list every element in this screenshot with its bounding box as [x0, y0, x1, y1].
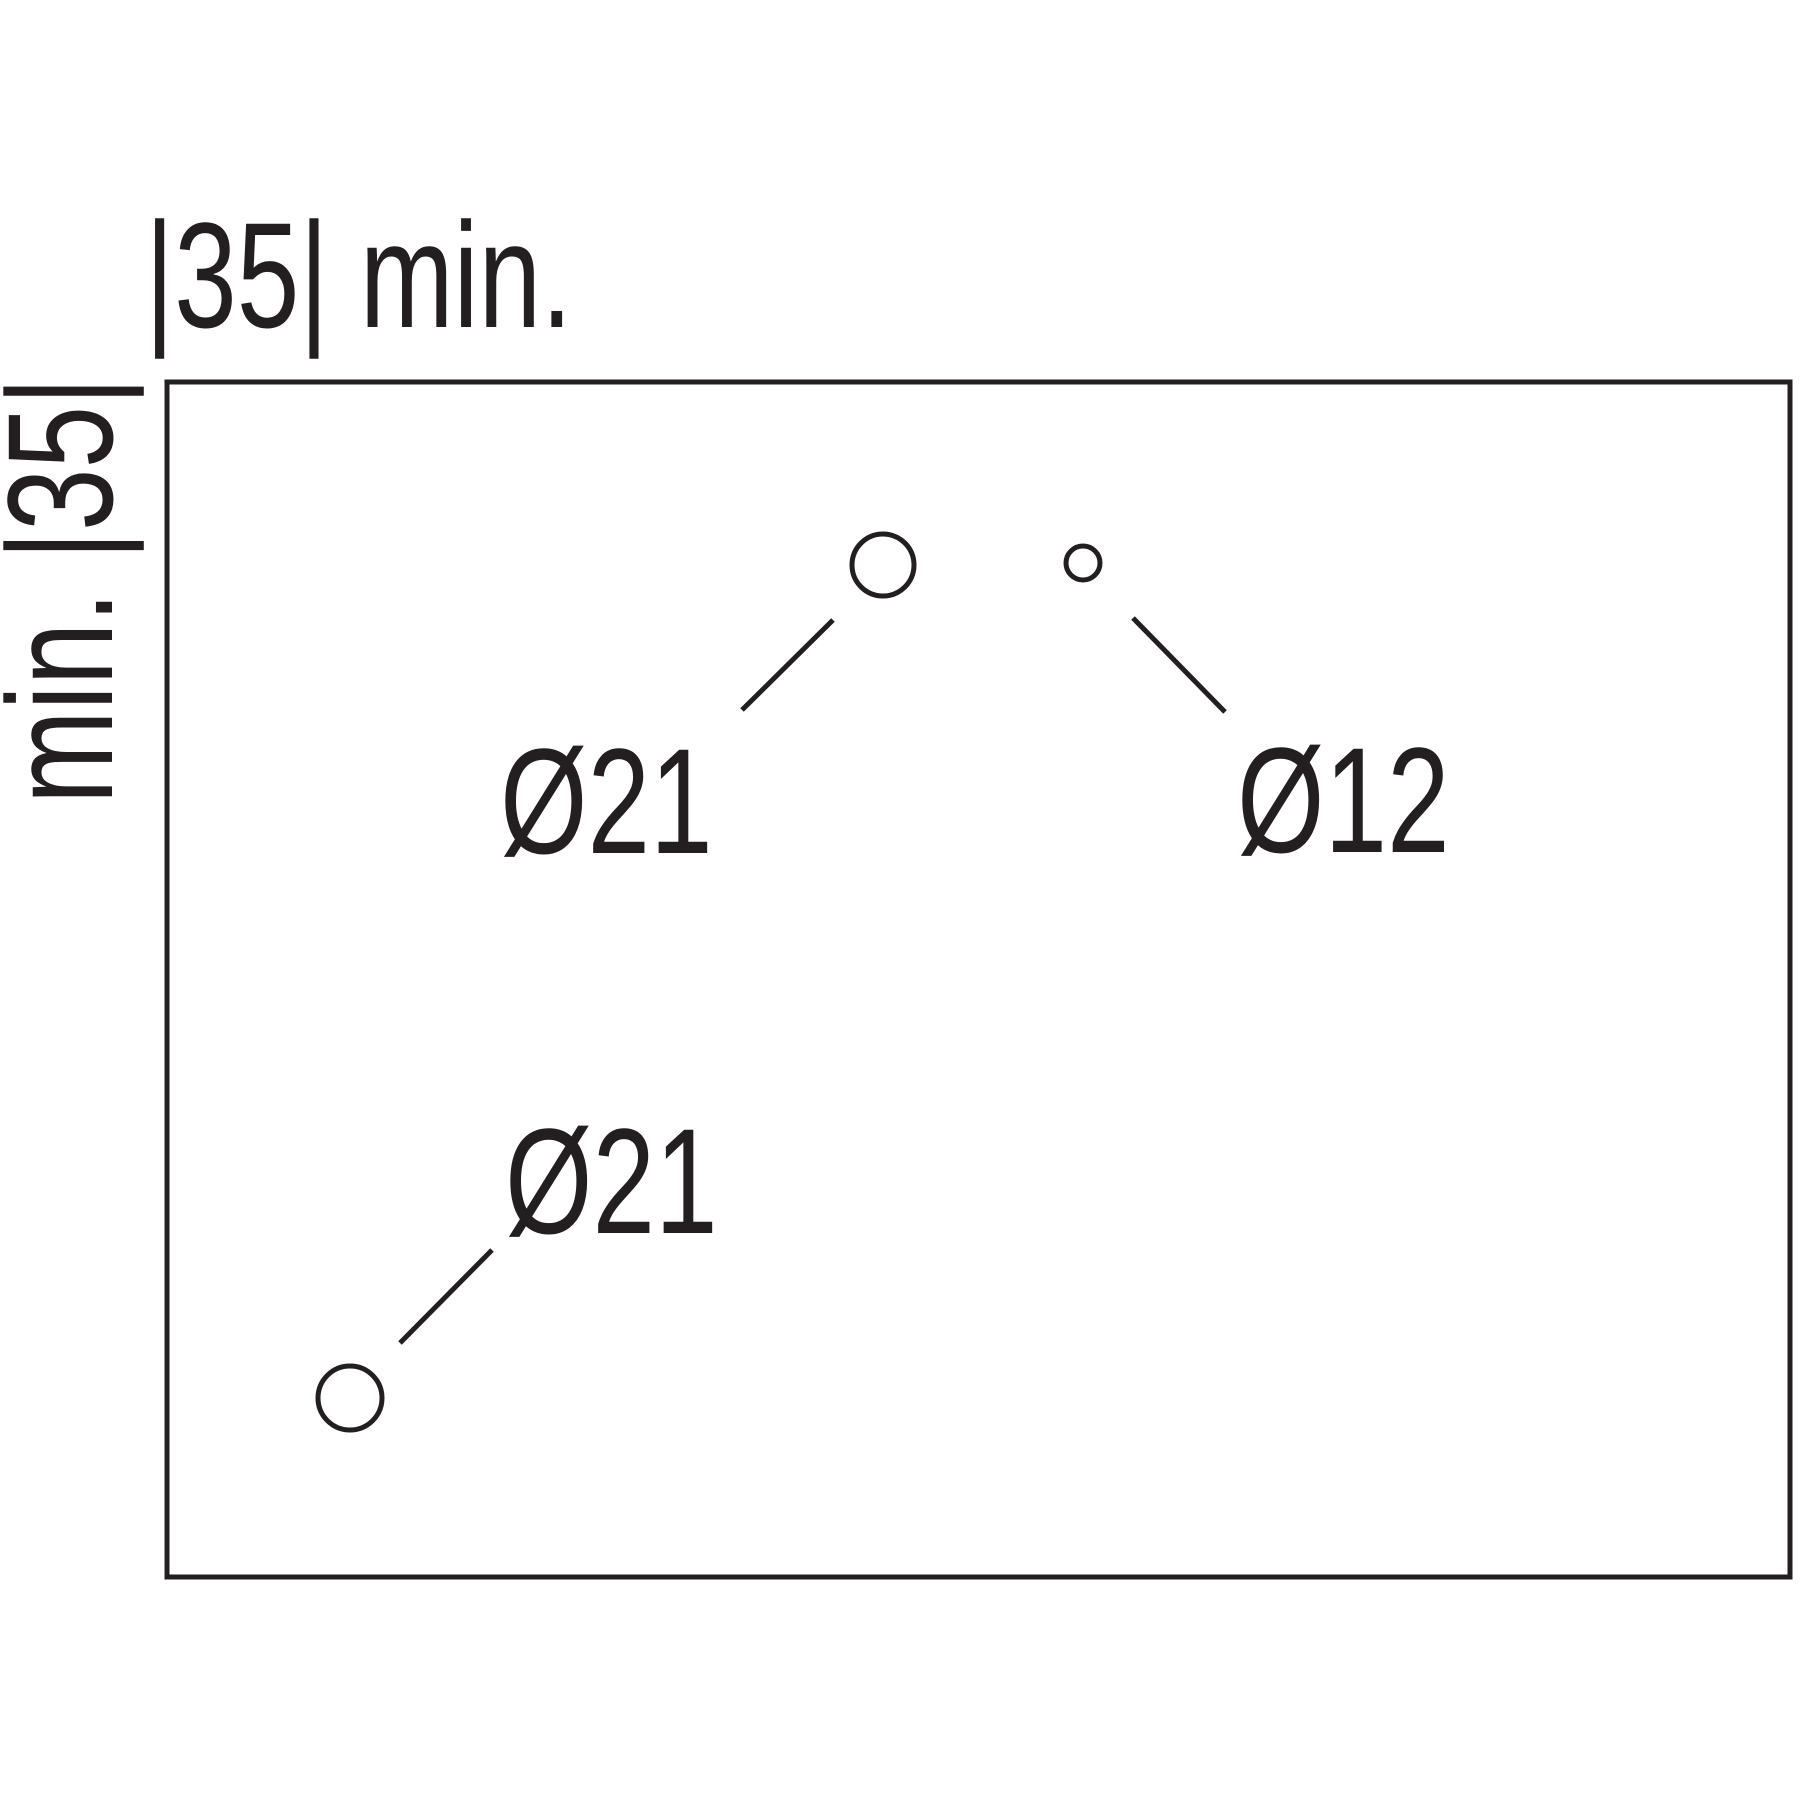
hole-circle-bottom-left: [318, 1366, 382, 1430]
diameter-label-top-left-hole: Ø21: [500, 726, 713, 876]
hole-circle-top-right: [1066, 546, 1100, 580]
panel-outline-rectangle: [167, 382, 1790, 1577]
hole-circle-top-left: [852, 534, 914, 596]
diameter-label-top-right-hole: Ø12: [1237, 725, 1450, 875]
drawing-canvas: |35| min. min. |35| Ø21 Ø12 Ø21: [0, 0, 1800, 1800]
diameter-label-bottom-left-hole: Ø21: [505, 1106, 718, 1256]
dimension-label-left: min. |35|: [0, 377, 135, 804]
leader-line-top-right-hole: [1133, 618, 1225, 712]
leader-line-bottom-left-hole: [400, 1250, 492, 1343]
dimension-label-top: |35| min.: [145, 200, 572, 350]
leader-line-top-left-hole: [742, 620, 833, 710]
